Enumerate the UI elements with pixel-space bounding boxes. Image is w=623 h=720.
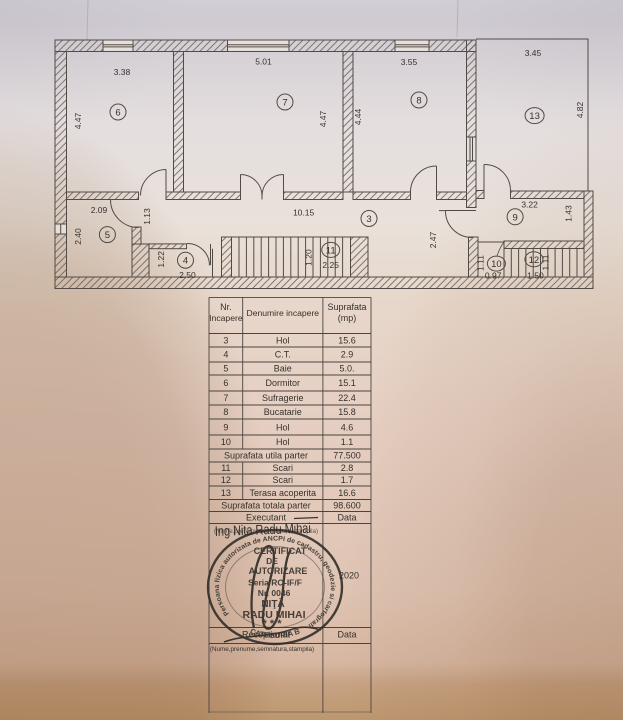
svg-text:3.45: 3.45 — [525, 48, 542, 58]
svg-text:1.22: 1.22 — [156, 251, 166, 268]
svg-text:Bucatarie: Bucatarie — [264, 407, 302, 417]
svg-text:4: 4 — [223, 350, 228, 360]
svg-text:Nr. 0046: Nr. 0046 — [258, 588, 291, 598]
svg-text:Data: Data — [337, 513, 356, 523]
svg-text:3.38: 3.38 — [114, 67, 131, 77]
svg-text:Nr.: Nr. — [220, 302, 232, 312]
svg-text:2.25: 2.25 — [322, 260, 339, 270]
svg-text:C.T.: C.T. — [275, 350, 291, 360]
svg-text:Sufragerie: Sufragerie — [262, 393, 304, 403]
svg-text:Hol: Hol — [276, 423, 290, 433]
svg-text:Suprafata utila parter: Suprafata utila parter — [224, 451, 308, 461]
svg-text:2.50: 2.50 — [179, 270, 196, 280]
svg-text:9: 9 — [512, 212, 517, 223]
svg-text:7: 7 — [223, 393, 228, 403]
svg-text:Seria RO-IF/F: Seria RO-IF/F — [248, 578, 302, 588]
svg-text:0.97: 0.97 — [485, 271, 502, 281]
svg-text:2.9: 2.9 — [341, 350, 354, 360]
svg-text:98.600: 98.600 — [333, 501, 361, 511]
svg-text:3: 3 — [223, 336, 228, 346]
svg-text:7: 7 — [282, 98, 287, 109]
svg-text:4.44: 4.44 — [353, 108, 363, 125]
svg-text:2.8: 2.8 — [341, 463, 354, 473]
svg-text:4.82: 4.82 — [575, 101, 585, 118]
svg-text:15.8: 15.8 — [338, 407, 356, 417]
svg-text:9: 9 — [223, 423, 228, 433]
svg-text:Data: Data — [337, 630, 356, 640]
svg-text:3: 3 — [366, 214, 371, 225]
svg-text:4.47: 4.47 — [318, 110, 328, 127]
svg-text:DE: DE — [266, 556, 278, 566]
svg-text:11: 11 — [221, 463, 230, 473]
svg-text:(Nume,prenume,semnatura,stampi: (Nume,prenume,semnatura,stampila) — [210, 646, 314, 653]
svg-text:12: 12 — [529, 255, 540, 266]
svg-text:8: 8 — [416, 96, 421, 107]
svg-text:6: 6 — [223, 378, 228, 388]
svg-text:11: 11 — [326, 245, 336, 256]
svg-text:2.40: 2.40 — [73, 228, 83, 245]
svg-text:77.500: 77.500 — [333, 451, 361, 461]
svg-text:15.6: 15.6 — [338, 336, 356, 346]
svg-text:8: 8 — [223, 407, 228, 417]
svg-text:Dormitor: Dormitor — [266, 378, 301, 388]
svg-text:Baie: Baie — [274, 364, 292, 374]
svg-text:Suprafata: Suprafata — [327, 302, 366, 312]
svg-text:6: 6 — [115, 108, 120, 119]
svg-text:Hol: Hol — [276, 336, 290, 346]
svg-text:1.50: 1.50 — [527, 271, 544, 281]
svg-text:2.09: 2.09 — [91, 205, 108, 215]
svg-text:10: 10 — [221, 437, 231, 447]
svg-text:1.7: 1.7 — [341, 475, 354, 485]
svg-text:(mp): (mp) — [338, 313, 357, 323]
svg-text:Denumire incapere: Denumire incapere — [246, 308, 319, 318]
svg-text:10: 10 — [491, 259, 502, 270]
svg-text:1.11: 1.11 — [476, 255, 486, 271]
svg-text:Scari: Scari — [273, 475, 294, 485]
svg-text:Suprafata totala parter: Suprafata totala parter — [221, 501, 311, 511]
svg-text:1.43: 1.43 — [564, 205, 574, 222]
svg-text:13: 13 — [529, 111, 540, 122]
svg-text:22.4: 22.4 — [338, 393, 356, 403]
svg-text:3.55: 3.55 — [401, 57, 418, 67]
svg-text:1.20: 1.20 — [303, 249, 313, 266]
svg-text:Incapere: Incapere — [209, 313, 243, 323]
svg-text:5: 5 — [223, 364, 228, 374]
svg-text:4.6: 4.6 — [341, 423, 354, 433]
svg-text:5.0.: 5.0. — [339, 364, 354, 374]
svg-text:5.01: 5.01 — [255, 57, 272, 67]
svg-text:Terasa acoperita: Terasa acoperita — [250, 488, 317, 498]
svg-text:5: 5 — [105, 230, 110, 241]
svg-text:2.47: 2.47 — [428, 231, 438, 248]
svg-text:4: 4 — [183, 256, 188, 267]
svg-text:10.15: 10.15 — [293, 208, 315, 218]
svg-text:1.1: 1.1 — [341, 437, 354, 447]
svg-text:3.22: 3.22 — [521, 200, 538, 210]
svg-text:4.47: 4.47 — [73, 112, 83, 129]
svg-text:15.1: 15.1 — [338, 378, 356, 388]
svg-text:Ing Nita Radu Mihai: Ing Nita Radu Mihai — [215, 520, 311, 539]
svg-text:12: 12 — [221, 475, 231, 485]
svg-text:Hol: Hol — [276, 437, 290, 447]
svg-text:13: 13 — [221, 488, 231, 498]
svg-text:AUTORIZARE: AUTORIZARE — [249, 566, 308, 576]
svg-text:16.6: 16.6 — [338, 488, 356, 498]
svg-text:1.13: 1.13 — [142, 208, 152, 225]
svg-text:Scari: Scari — [273, 463, 294, 473]
